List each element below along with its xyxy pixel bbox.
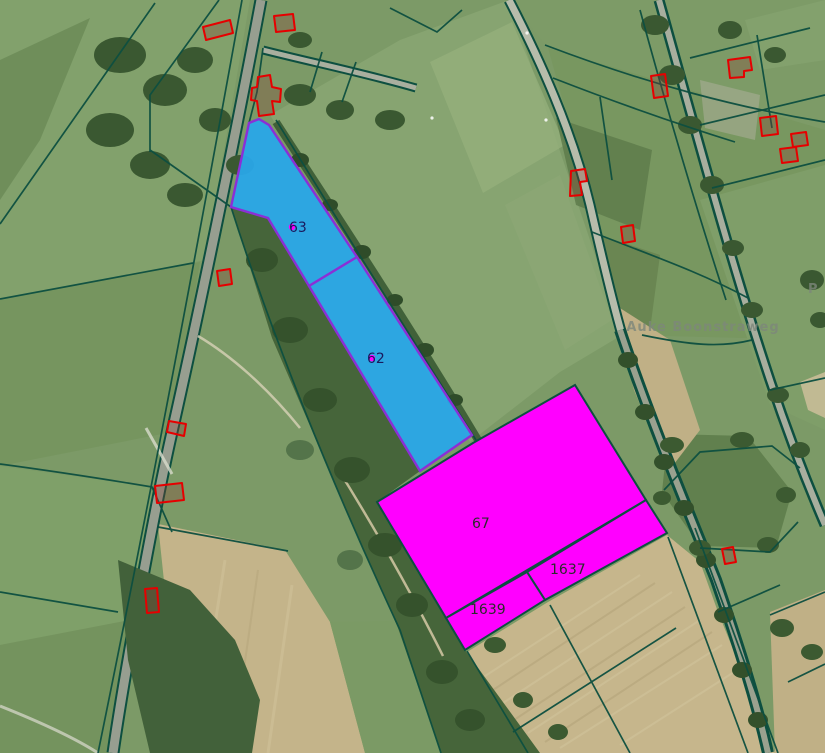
building-outline: [217, 269, 232, 286]
building-outline: [791, 132, 808, 147]
building-outline: [145, 588, 159, 613]
building-outline: [274, 14, 295, 32]
parcel-label-1639: 1639: [470, 602, 506, 618]
parcel-label-67: 67: [472, 516, 490, 532]
building-outline: [780, 147, 798, 163]
building-outline: [155, 483, 184, 503]
building-outline: [722, 547, 736, 564]
street-label-auke-boonstraweg: Auke Boonstraweg: [626, 320, 779, 335]
parcel-label-63: 63: [289, 220, 307, 236]
map-canvas[interactable]: 63 62 67 1637 1639 Auke Boonstraweg P: [0, 0, 825, 753]
parcel-label-62: 62: [367, 351, 385, 367]
street-label-partial-p: P: [808, 282, 819, 297]
map-frame: 63 62 67 1637 1639 Auke Boonstraweg P: [0, 0, 825, 753]
building-outline: [760, 116, 778, 136]
building-outline: [621, 225, 635, 243]
parcel-label-1637: 1637: [550, 562, 586, 578]
building-outline: [651, 74, 668, 98]
